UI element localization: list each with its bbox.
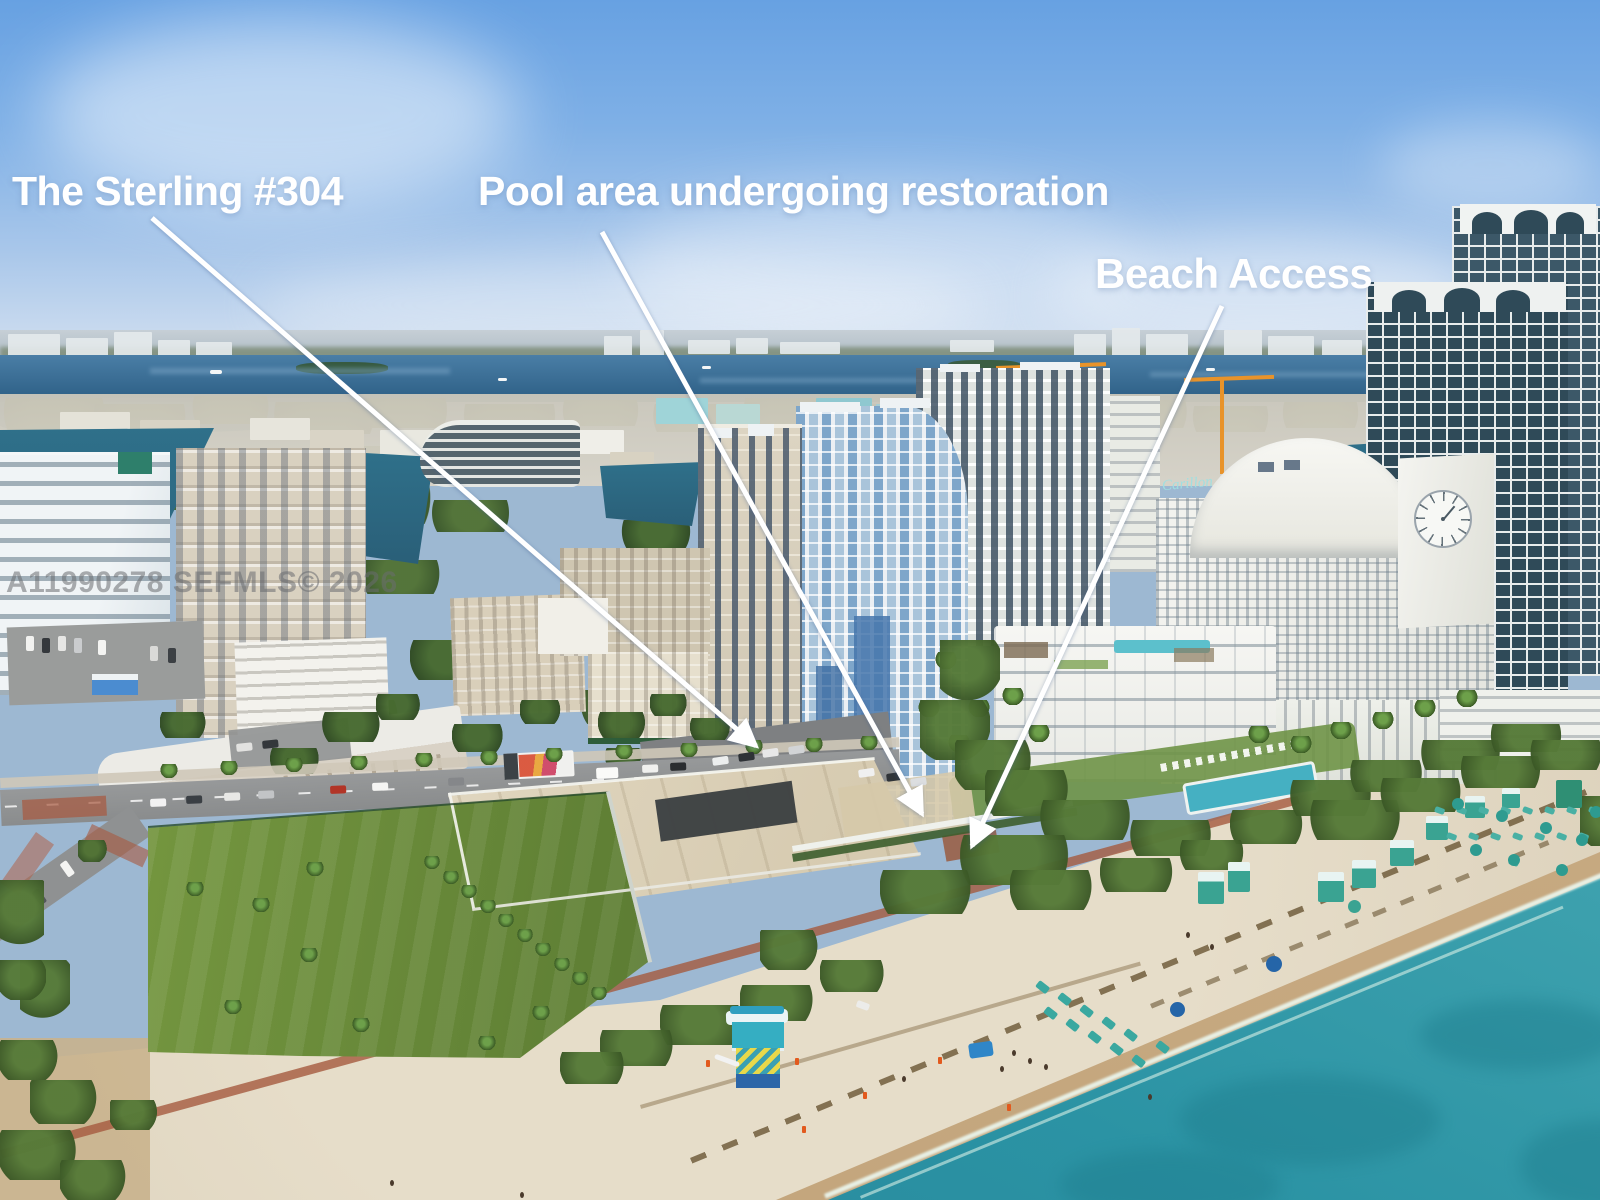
tree <box>690 718 734 740</box>
boat <box>702 366 711 369</box>
palm-tree <box>1456 690 1478 707</box>
car <box>150 798 166 807</box>
tree <box>598 712 650 738</box>
rooftop-structure <box>800 402 860 412</box>
rooftop-box <box>118 452 152 474</box>
tree-cluster <box>430 500 520 532</box>
cloud <box>1380 120 1600 210</box>
traffic-cone <box>795 1058 799 1065</box>
kiosk <box>92 680 138 695</box>
boat <box>1206 368 1215 371</box>
palm-tree <box>1248 726 1270 743</box>
car <box>168 648 176 663</box>
palm-tree <box>498 914 514 927</box>
person <box>1186 932 1190 938</box>
rooftop-structure <box>712 428 732 438</box>
distant-building <box>950 340 994 352</box>
palm-tree <box>160 764 178 778</box>
van <box>596 767 618 779</box>
lifeguard-tower-rooftop <box>730 1006 784 1014</box>
beach-umbrella <box>1452 798 1464 810</box>
palm-tree <box>1330 722 1352 739</box>
dune-bush <box>1530 740 1600 770</box>
median-planting <box>78 840 108 862</box>
dune-bush <box>110 1100 160 1130</box>
palm-tree <box>532 1006 550 1020</box>
car <box>670 762 686 771</box>
beach-umbrella <box>1496 810 1508 822</box>
rooftop-pergola <box>1174 648 1214 662</box>
person <box>1012 1050 1016 1056</box>
dune-bush <box>60 1160 130 1200</box>
water-sheen <box>150 368 450 374</box>
curved-building <box>420 420 580 487</box>
white-slab-building <box>1106 396 1160 572</box>
car <box>98 640 106 655</box>
dune-bush <box>560 1052 630 1084</box>
midground-building <box>716 404 760 424</box>
palm-tree <box>1414 700 1436 717</box>
car <box>186 795 202 804</box>
dune-bush <box>0 880 44 950</box>
distant-building <box>604 336 632 356</box>
distant-building <box>1268 336 1314 356</box>
palm-tree <box>554 958 570 971</box>
beach-cabana <box>1426 816 1448 840</box>
boat <box>210 370 222 374</box>
distant-building <box>1112 328 1140 358</box>
crown-arch <box>1556 212 1584 234</box>
palm-tree <box>443 871 459 884</box>
crown-arch <box>1444 288 1480 312</box>
roof-vent <box>1258 462 1274 472</box>
rooftop-pergola <box>1004 642 1048 658</box>
rooftop-structure <box>748 424 774 436</box>
dune-bush <box>1010 870 1100 910</box>
traffic-cone <box>706 1060 710 1067</box>
car <box>224 792 240 801</box>
palm-tree <box>285 758 303 772</box>
dune-bush <box>760 930 820 970</box>
beach-umbrella <box>1170 1002 1185 1017</box>
roof-vent <box>1284 460 1300 470</box>
palm-tree <box>224 1000 242 1014</box>
palm-tree <box>350 756 368 770</box>
midground-building <box>250 418 310 440</box>
palm-tree <box>680 743 698 757</box>
palm-tree <box>1002 688 1024 705</box>
palm-tree <box>860 736 878 750</box>
distant-building <box>780 342 840 354</box>
beach-umbrella <box>1590 806 1600 818</box>
distant-building <box>1322 340 1362 356</box>
carillon-script-sign: Carillon <box>1161 474 1213 495</box>
dune-bush <box>30 1080 100 1124</box>
palm-tree <box>535 943 551 956</box>
rooftop-structure <box>1020 362 1080 370</box>
palm-tree <box>252 898 270 912</box>
aerial-photo: Carillon A11990278 SEFMLS© 2026 The Ster… <box>0 0 1600 1200</box>
palm-tree <box>572 972 588 985</box>
clock-center <box>1441 517 1445 521</box>
palm-tree <box>461 885 477 898</box>
tree <box>160 712 210 738</box>
dune-bush <box>1040 800 1140 840</box>
car <box>42 638 50 653</box>
crown-arch <box>1514 210 1548 234</box>
palm-tree <box>615 745 633 759</box>
annotation-label-sterling: The Sterling #304 <box>12 168 343 215</box>
car <box>74 638 82 653</box>
beach-umbrella <box>1508 854 1520 866</box>
palm-tree <box>545 748 563 762</box>
distant-building <box>736 338 768 354</box>
palm-tree <box>352 1018 370 1032</box>
palm-tree <box>1372 712 1394 729</box>
car <box>58 636 66 651</box>
palm-tree <box>805 738 823 752</box>
distant-building <box>1146 334 1188 356</box>
palm-tree <box>1290 736 1312 753</box>
rooftop-structure <box>940 364 980 372</box>
crown-arch <box>1496 290 1530 312</box>
tree <box>520 700 564 724</box>
beach-umbrella <box>1266 956 1282 972</box>
lifeguard-tower-cabin <box>732 1022 784 1051</box>
person <box>1000 1066 1004 1072</box>
palm-tree <box>480 900 496 913</box>
dune-bush <box>0 1040 60 1080</box>
palm-tree <box>424 856 440 869</box>
palm-tree <box>300 948 318 962</box>
beach-umbrella <box>1576 834 1588 846</box>
midground-building <box>656 398 708 424</box>
ocean-dark-patch <box>1180 1075 1440 1165</box>
distant-building <box>158 340 190 356</box>
lifeguard-tower-stripes <box>736 1048 780 1074</box>
distant-building <box>196 342 232 356</box>
car <box>262 739 279 749</box>
crown-arch <box>1392 290 1426 312</box>
tree <box>650 694 690 716</box>
palm-tree <box>478 1036 496 1050</box>
car <box>372 782 388 791</box>
annotation-label-beach-access: Beach Access <box>1095 250 1372 298</box>
car <box>258 790 274 799</box>
clock-face <box>1414 490 1472 548</box>
distant-building <box>640 330 664 356</box>
small-white-building <box>538 598 608 654</box>
rooftop-lawn <box>1054 660 1108 669</box>
dune-bush <box>880 870 980 914</box>
construction-crane <box>1220 378 1224 474</box>
beach-cabana <box>1228 862 1250 892</box>
dune-bush <box>0 960 46 1000</box>
beach-umbrella <box>1556 864 1568 876</box>
boat <box>498 378 507 381</box>
car <box>448 777 464 786</box>
truck-cab <box>503 753 518 780</box>
palm-tree <box>480 751 498 765</box>
midground-building <box>310 430 364 450</box>
traffic-cone <box>1007 1104 1011 1111</box>
person <box>1028 1058 1032 1064</box>
car <box>26 636 34 651</box>
distant-building <box>1224 330 1262 356</box>
traffic-cone <box>938 1057 942 1064</box>
crown-arch <box>1472 212 1502 234</box>
creek-water <box>600 462 704 526</box>
car <box>642 764 658 773</box>
mls-watermark: A11990278 SEFMLS© 2026 <box>6 566 398 600</box>
tree <box>376 694 424 720</box>
beach-umbrella <box>1540 822 1552 834</box>
beach-cabana <box>1318 872 1344 902</box>
beach-cabana <box>1390 840 1414 866</box>
beach-cabana <box>1556 780 1582 808</box>
palm-tree <box>306 862 324 876</box>
palm-tree <box>186 882 204 896</box>
person <box>1148 1094 1152 1100</box>
palm-tree <box>591 987 607 1000</box>
person <box>390 1180 394 1186</box>
car <box>236 742 253 752</box>
person <box>902 1076 906 1082</box>
beach-cabana <box>1198 872 1224 904</box>
person <box>520 1192 524 1198</box>
rooftop-structure <box>880 398 930 408</box>
car <box>150 646 158 661</box>
distant-building <box>114 332 152 356</box>
beach-umbrella <box>1470 844 1482 856</box>
beach-cabana <box>1502 788 1520 808</box>
box-truck <box>503 750 574 780</box>
palm-tree <box>415 753 433 767</box>
traffic-cone <box>802 1126 806 1133</box>
person <box>1210 944 1214 950</box>
distant-building <box>8 334 60 356</box>
dune-bush <box>820 960 890 992</box>
dune-bush <box>1100 858 1180 892</box>
tree <box>452 724 508 752</box>
person <box>1044 1064 1048 1070</box>
distant-building <box>66 338 108 356</box>
beach-umbrella <box>1348 900 1361 913</box>
dune-bush <box>940 640 1000 700</box>
annotation-label-pool: Pool area undergoing restoration <box>478 168 1109 215</box>
car <box>330 785 346 794</box>
distant-building <box>688 340 730 354</box>
palm-tree <box>220 761 238 775</box>
palm-tree <box>517 929 533 942</box>
beach-cabana <box>1352 860 1376 888</box>
traffic-cone <box>863 1092 867 1099</box>
lifeguard-tower-base <box>736 1074 780 1088</box>
